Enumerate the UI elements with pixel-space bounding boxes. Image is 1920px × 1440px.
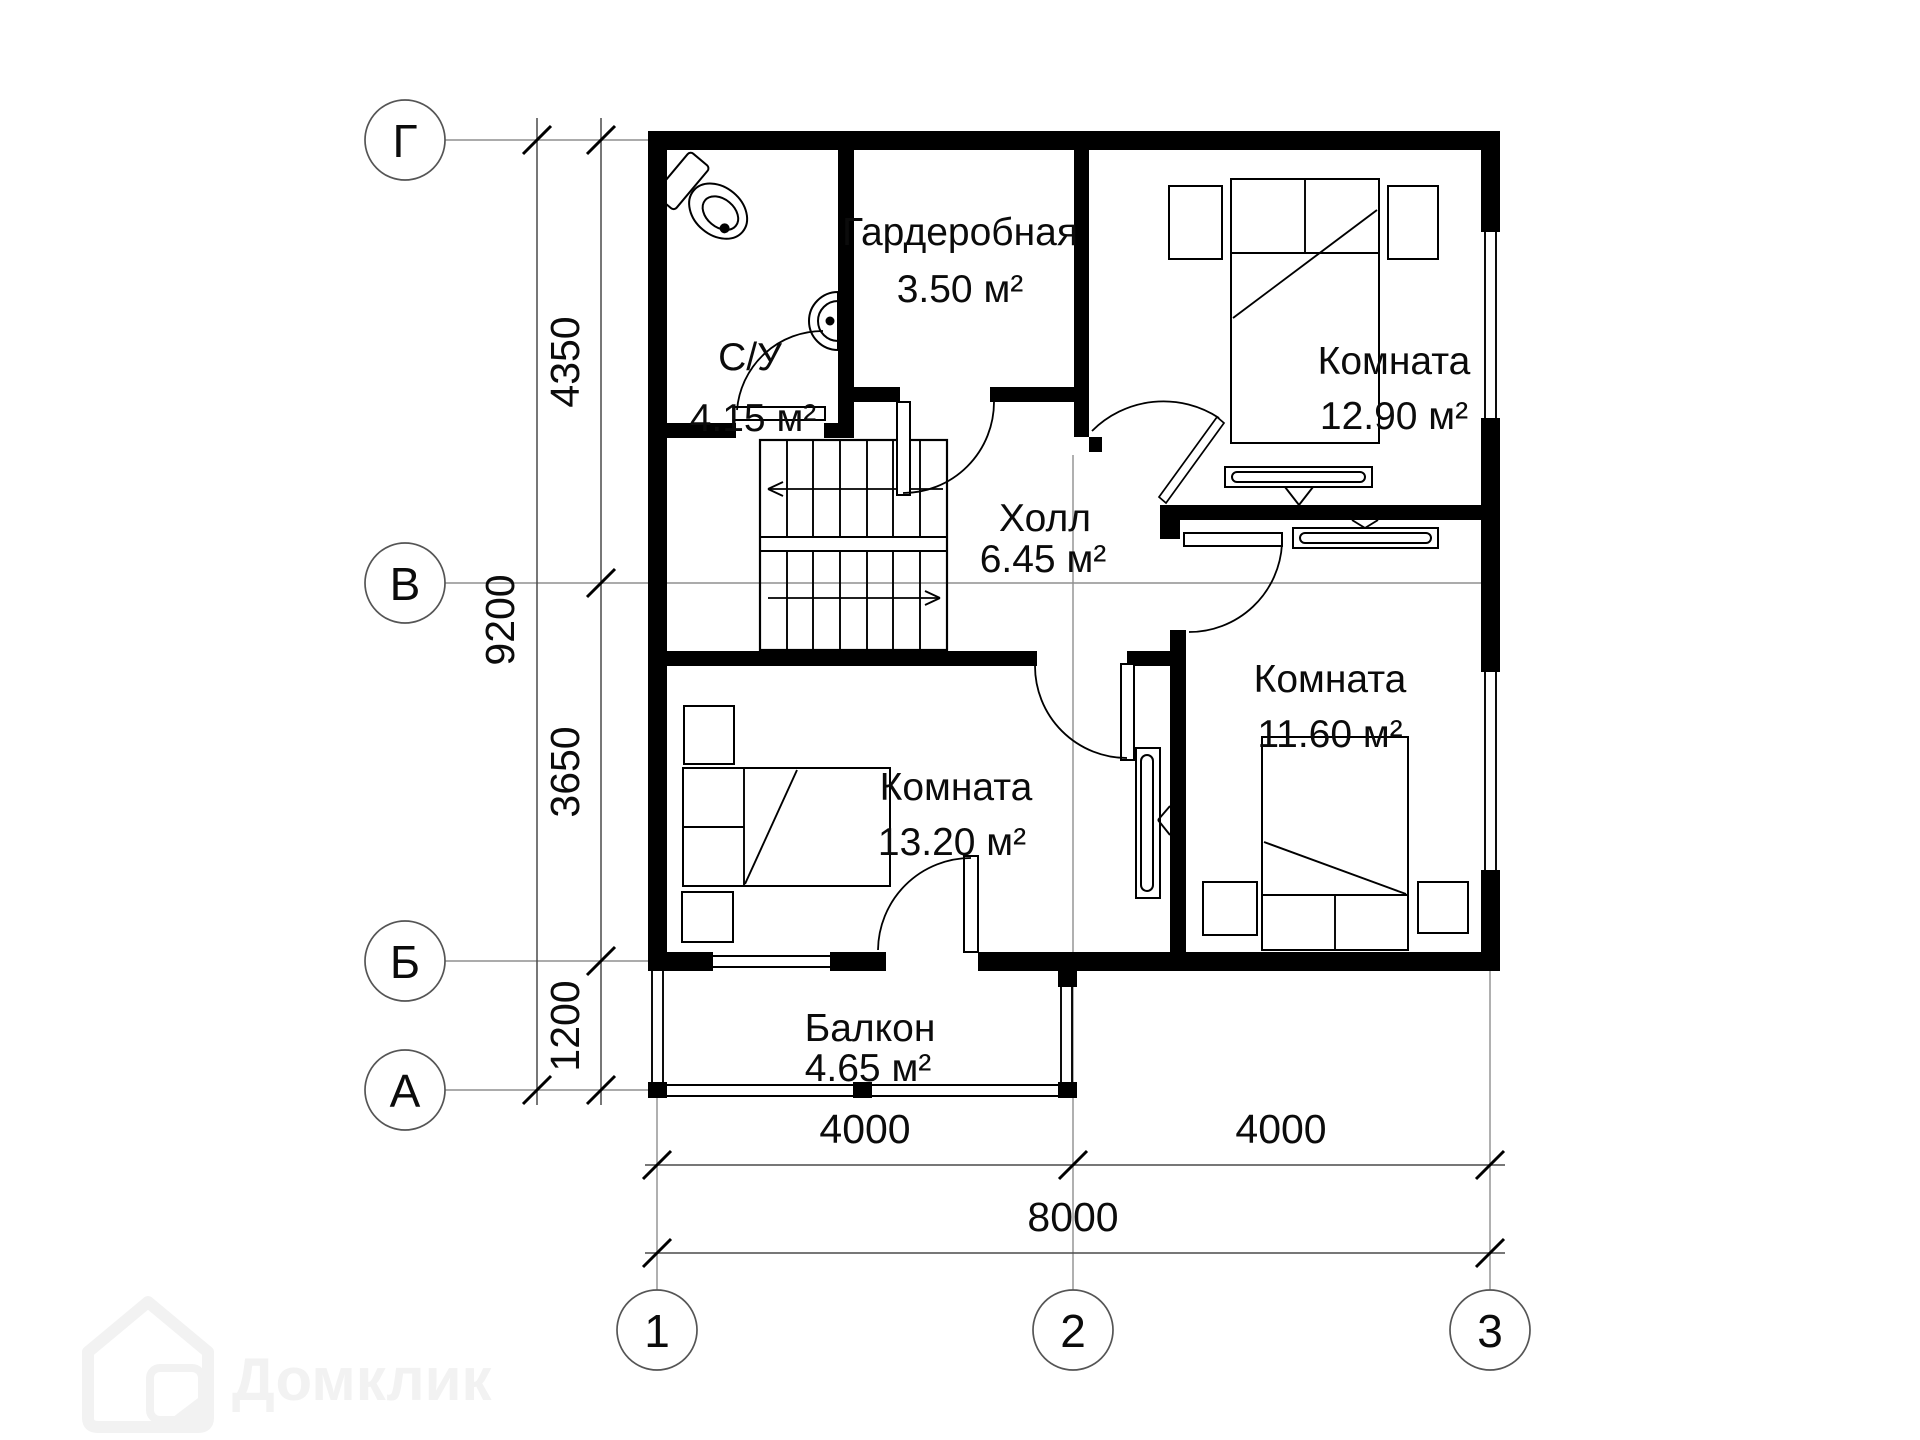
room-area-bedroom-13-20: 13.20 м² [878,821,1026,864]
room-label-wardrobe: Гардеробная [842,211,1078,254]
window-icon [713,951,830,972]
axis-label-row-a: А [390,1065,421,1117]
dim-4350: 4350 [542,316,588,407]
room-label-bedroom-12-90: Комната [1318,340,1471,383]
toilet-icon [654,151,760,253]
radiator-icon [1136,748,1170,898]
nightstand-icon [1418,882,1468,933]
watermark-label: Домклик [232,1346,492,1413]
axis-label-row-g: Г [393,115,418,167]
double-bed-icon [683,768,890,886]
dim-1200: 1200 [542,980,588,1071]
nightstand-icon [1203,882,1257,935]
dim-9200: 9200 [477,574,523,665]
stairs-up-arrow [768,482,943,605]
axis-label-row-b: Б [390,936,420,988]
dim-4000-left: 4000 [819,1106,910,1152]
room-area-balcony: 4.65 м² [805,1047,932,1090]
stairs-icon [760,440,947,650]
room-area-hall: 6.45 м² [980,538,1107,581]
room-area-wardrobe: 3.50 м² [897,268,1024,311]
door-swing-icon [1035,664,1134,760]
floor-plan-page: Г В Б А 1 2 3 4350 9200 3650 1200 4000 4… [0,0,1920,1440]
nightstand-icon [1169,186,1222,259]
dim-3650: 3650 [542,726,588,817]
room-area-wc: 4.15 м² [690,397,817,440]
room-area-bedroom-11-60: 11.60 м² [1257,713,1402,756]
room-label-bedroom-11-60: Комната [1254,658,1407,701]
floor-plan: Г В Б А 1 2 3 4350 9200 3650 1200 4000 4… [0,0,1920,1440]
radiator-icon [1225,467,1372,505]
room-area-bedroom-12-90: 12.90 м² [1320,395,1468,438]
axis-label-col-3: 3 [1477,1305,1503,1357]
nightstand-icon [1388,186,1438,259]
axis-label-col-2: 2 [1060,1305,1086,1357]
double-bed-icon [1262,737,1408,950]
door-swing-icon [1092,401,1224,503]
room-label-hall: Холл [999,497,1091,540]
radiator-icon [1293,520,1438,548]
nightstand-icon [682,892,733,942]
dim-8000: 8000 [1027,1194,1118,1240]
window-icon [1480,672,1501,870]
dim-4000-right: 4000 [1235,1106,1326,1152]
nightstand-icon [684,706,734,764]
axis-label-row-v: В [390,558,421,610]
room-label-wc: С/У [718,336,782,379]
door-swing-icon [878,856,978,952]
door-swing-icon [897,402,994,495]
room-label-bedroom-13-20: Комната [880,766,1033,809]
watermark: Домклик [88,1302,492,1427]
window-icon [1480,232,1501,418]
sink-icon [809,292,838,350]
axis-label-col-1: 1 [644,1305,670,1357]
room-label-balcony: Балкон [805,1007,936,1050]
